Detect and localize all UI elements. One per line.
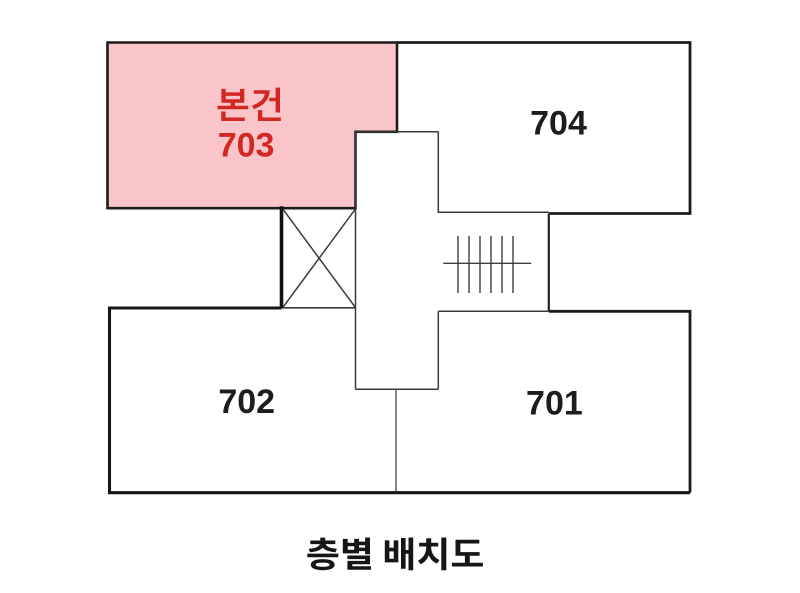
svg-text:703: 703 xyxy=(218,126,275,164)
svg-text:702: 702 xyxy=(218,383,275,421)
svg-text:704: 704 xyxy=(530,105,587,143)
svg-text:701: 701 xyxy=(526,385,583,423)
